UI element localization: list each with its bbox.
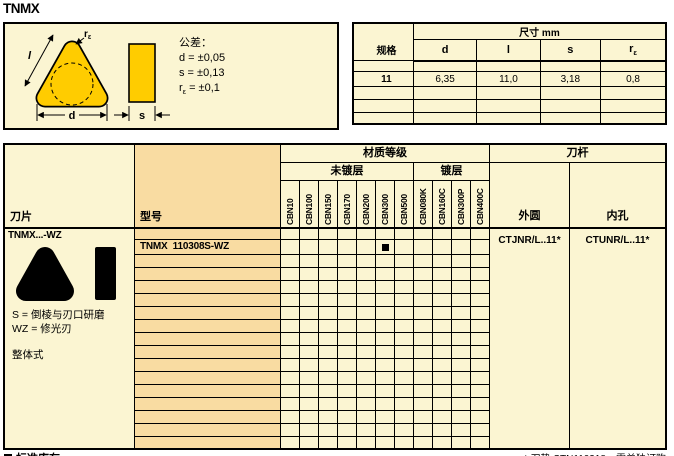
model-row [135, 307, 280, 320]
grade-grid-row [281, 385, 490, 398]
grade-grid-cell [414, 307, 433, 320]
grade-grid-cell [433, 281, 452, 294]
stock-marker [382, 244, 389, 251]
grade-grid-cell [471, 320, 490, 333]
grade-column-cbn500: CBN500 [395, 181, 414, 227]
grade-grid-row [281, 346, 490, 359]
grade-grid-cell [319, 437, 338, 448]
grade-grid-cell [300, 320, 319, 333]
insert-silhouettes [13, 245, 131, 303]
grade-grid-cell [376, 268, 395, 281]
grade-grid-cell [319, 372, 338, 385]
empty-cell [477, 87, 540, 100]
grade-grid-cell [452, 411, 471, 424]
grade-grid-cell [319, 398, 338, 411]
tolerance-r-rest: = ±0,1 [186, 82, 220, 94]
grade-grid-cell [433, 346, 452, 359]
note-edge-prep: S = 倒棱与刃口研磨 [12, 307, 104, 322]
grade-grid-cell [433, 372, 452, 385]
grade-grid-cell [452, 268, 471, 281]
model-row [135, 437, 280, 448]
grade-grid-cell [281, 359, 300, 372]
empty-cell [413, 87, 476, 100]
grade-column-cbn400c: CBN400C [471, 181, 490, 227]
grade-grid-cell [452, 307, 471, 320]
grade-grid-cell [471, 281, 490, 294]
grade-grid-cell [300, 346, 319, 359]
grade-grid-row [281, 229, 490, 240]
grade-grid-cell [357, 255, 376, 268]
grade-grid-cell [338, 346, 357, 359]
grade-grid-cell [338, 411, 357, 424]
grade-grid-cell [357, 268, 376, 281]
grade-columns: CBN10CBN100CBN150CBN170CBN200CBN300CBN50… [281, 181, 490, 227]
grade-column-label: CBN500 [399, 194, 409, 225]
empty-cell [601, 61, 666, 72]
grade-grid-cell [414, 320, 433, 333]
grade-column-label: CBN400C [475, 188, 485, 225]
empty-cell [601, 87, 666, 100]
grade-grid-cell [452, 240, 471, 255]
grade-grid-row [281, 411, 490, 424]
tolerance-block: 公差： d = ±0,05 s = ±0,13 rε = ±0,1 [179, 36, 225, 99]
grade-grid-cell [414, 268, 433, 281]
grade-grid-cell [471, 294, 490, 307]
grade-grid-cell [338, 294, 357, 307]
grade-grid-cell [414, 240, 433, 255]
grade-grid-cell [433, 294, 452, 307]
grade-grid-cell [471, 255, 490, 268]
grade-grid-cell [452, 281, 471, 294]
tolerance-r: rε = ±0,1 [179, 81, 225, 99]
grade-grid-cell [414, 255, 433, 268]
grade-grid-cell [281, 320, 300, 333]
grade-grid-cell [376, 398, 395, 411]
grade-grid-cell [338, 255, 357, 268]
grade-grid-cell [471, 333, 490, 346]
model-row [135, 398, 280, 411]
label-d: d [69, 110, 76, 122]
holder-external-header-cell: 外圆 [490, 163, 570, 227]
grade-grid-cell [338, 229, 357, 240]
grade-grid-cell [433, 268, 452, 281]
holder-external-value: CTJNR/L..11* [490, 229, 569, 246]
grade-grid-cell [414, 385, 433, 398]
grade-grid-cell [471, 229, 490, 240]
empty-cell [540, 113, 600, 124]
grade-grid-row [281, 307, 490, 320]
grade-column-label: CBN10 [285, 199, 295, 225]
grade-grid-cell [357, 385, 376, 398]
empty-cell [540, 61, 600, 72]
insert-dimension-drawing: l rε d s [17, 28, 177, 128]
value-s: 3,18 [540, 72, 600, 87]
model-row [135, 255, 280, 268]
grade-grid-row [281, 268, 490, 281]
grade-grid-cell [357, 437, 376, 448]
grade-grid-cell [395, 385, 414, 398]
grade-grid-cell [300, 240, 319, 255]
col-header-r: rε [601, 40, 666, 61]
empty-cell [413, 113, 476, 124]
grade-grid-cell [376, 411, 395, 424]
empty-cell [540, 87, 600, 100]
grade-grid-cell [357, 372, 376, 385]
grade-column-label: CBN300 [380, 194, 390, 225]
empty-cell [413, 61, 476, 72]
grade-grid-row [281, 240, 490, 255]
grade-grid-cell [281, 411, 300, 424]
grade-grid-cell [433, 255, 452, 268]
grade-grid-cell [300, 437, 319, 448]
grade-grid-cell [414, 398, 433, 411]
catalog-page: TNMX l rε d s [0, 0, 674, 456]
grade-grid-cell [376, 372, 395, 385]
grade-grid-cell [338, 437, 357, 448]
grade-grid-cell [452, 294, 471, 307]
grade-grid-cell [471, 424, 490, 437]
grade-column-cbn100: CBN100 [300, 181, 319, 227]
grade-grid-cell [281, 372, 300, 385]
grade-grid-cell [376, 437, 395, 448]
grade-grid-cell [433, 385, 452, 398]
grade-grid-cell [338, 385, 357, 398]
model-row [135, 359, 280, 372]
grade-grid-cell [319, 240, 338, 255]
grade-grid-cell [414, 229, 433, 240]
grade-grid-cell [357, 333, 376, 346]
grade-grid-cell [300, 424, 319, 437]
grade-grid-cell [471, 268, 490, 281]
grade-grid-cell [357, 240, 376, 255]
grade-grid-cell [357, 229, 376, 240]
grade-group-header: 材质等级 [281, 145, 490, 163]
grade-grid-cell [357, 346, 376, 359]
grade-grid-cell [357, 359, 376, 372]
grade-grid-cell [452, 359, 471, 372]
grade-grid-cell [300, 229, 319, 240]
grade-grid-cell [395, 281, 414, 294]
grade-grid-cell [395, 229, 414, 240]
grade-grid-cell [452, 372, 471, 385]
grade-grid-cell [281, 385, 300, 398]
col-header-s: s [540, 40, 600, 61]
grade-grid-cell [452, 229, 471, 240]
grade-grid-cell [281, 398, 300, 411]
grade-grid-cell [319, 268, 338, 281]
grade-grid-cell [414, 424, 433, 437]
grade-grid-cell [338, 307, 357, 320]
grade-grid-cell [471, 437, 490, 448]
empty-cell [601, 113, 666, 124]
grade-grid-cell [357, 424, 376, 437]
insert-silhouette-side [95, 247, 116, 300]
grade-grid-cell [319, 333, 338, 346]
shim-footnote: * 刀垫 STN110318，需单独订购 [524, 450, 666, 456]
grade-grid-cell [376, 333, 395, 346]
empty-cell [540, 100, 600, 113]
grade-column-cbn10: CBN10 [281, 181, 300, 227]
grade-grid-cell [395, 359, 414, 372]
grade-grid-cell [300, 307, 319, 320]
grade-grid-cell [395, 307, 414, 320]
grade-grid-cell [414, 359, 433, 372]
grade-grid-row [281, 398, 490, 411]
grade-grid-cell [338, 398, 357, 411]
grade-grid-cell [281, 255, 300, 268]
grade-grid-cell [433, 307, 452, 320]
grade-column-label: CBN200 [361, 194, 371, 225]
grade-grid-cell [357, 398, 376, 411]
grade-grid-cell [338, 281, 357, 294]
grade-grid-cell [319, 385, 338, 398]
grade-grid-cell [395, 255, 414, 268]
grade-grid-cell [319, 320, 338, 333]
page-title: TNMX [3, 1, 39, 16]
empty-cell [601, 100, 666, 113]
empty-cell [477, 113, 540, 124]
grade-column-label: CBN080K [418, 188, 428, 225]
model-row [135, 372, 280, 385]
uncoated-group-header: 未镀层 [281, 163, 414, 181]
grade-grid-cell [414, 411, 433, 424]
grade-grid-cell [471, 346, 490, 359]
grade-grid-cell [433, 229, 452, 240]
empty-cell [353, 100, 413, 113]
grade-grid-cell [452, 255, 471, 268]
grade-grid-cell [376, 229, 395, 240]
tolerance-s: s = ±0,13 [179, 66, 225, 81]
grade-grid-cell [433, 240, 452, 255]
grade-grid-cell [338, 320, 357, 333]
grade-grid-cell [433, 359, 452, 372]
coated-group-header: 镀层 [414, 163, 490, 181]
grade-grid-cell [281, 240, 300, 255]
grade-grid-row [281, 437, 490, 448]
grade-grid-cell [395, 268, 414, 281]
grade-column-cbn200: CBN200 [357, 181, 376, 227]
grade-grid-row [281, 294, 490, 307]
grade-grid-cell [376, 385, 395, 398]
holder-internal-header: 内孔 [570, 207, 665, 223]
model-row [135, 424, 280, 437]
grade-grid-cell [357, 281, 376, 294]
grade-grid-cell [300, 294, 319, 307]
model-row [135, 229, 280, 240]
grade-grid-cell [376, 255, 395, 268]
grade-column-cbn160c: CBN160C [433, 181, 452, 227]
grade-grid-cell [300, 398, 319, 411]
grade-selection-table: 刀片 型号 材质等级 未镀层 镀层 CBN10CBN100CBN150CBN17… [3, 143, 667, 450]
grade-grid-cell [433, 437, 452, 448]
grade-grid-cell [300, 255, 319, 268]
holder-internal-header-cell: 内孔 [570, 163, 665, 227]
grade-grid-cell [281, 268, 300, 281]
model-row [135, 411, 280, 424]
insert-header-cell: 刀片 [5, 145, 135, 227]
grade-grid-cell [471, 398, 490, 411]
grade-grid-row [281, 320, 490, 333]
label-l: l [28, 50, 32, 62]
grade-grid-cell [395, 437, 414, 448]
grade-grid-cell [300, 281, 319, 294]
grade-grid-row [281, 255, 490, 268]
grade-grid-cell [395, 372, 414, 385]
spec-header: 规格 [353, 23, 413, 61]
grade-grid-cell [395, 294, 414, 307]
size-group-header: 尺寸 mm [413, 23, 666, 40]
grade-column-cbn170: CBN170 [338, 181, 357, 227]
grade-grid-cell [414, 372, 433, 385]
empty-cell [477, 100, 540, 113]
grade-grid-cell [452, 320, 471, 333]
grade-grid-cell [471, 307, 490, 320]
grade-grid-cell [281, 229, 300, 240]
grade-grid-cell [319, 359, 338, 372]
grade-grid-cell [338, 359, 357, 372]
grade-grid-cell [414, 294, 433, 307]
grade-grid-cell [414, 346, 433, 359]
model-row [135, 268, 280, 281]
grade-grid-cell [376, 424, 395, 437]
grade-grid-cell [319, 229, 338, 240]
grade-grid-cell [376, 294, 395, 307]
grade-grid-cell [471, 359, 490, 372]
grade-column-cbn150: CBN150 [319, 181, 338, 227]
grade-grid-cell [281, 294, 300, 307]
stock-legend: 标准库存 [4, 450, 60, 456]
grade-grid-cell [433, 320, 452, 333]
grade-column-label: CBN170 [342, 194, 352, 225]
grade-grid-cell [376, 320, 395, 333]
holder-internal-cell: CTUNR/L..11* [570, 229, 665, 448]
model-header-label: 型号 [140, 208, 162, 224]
grade-grid-cell [281, 333, 300, 346]
model-row [135, 294, 280, 307]
insert-header-label: 刀片 [10, 208, 32, 224]
grade-column-cbn080k: CBN080K [414, 181, 433, 227]
grade-grid-cell [281, 424, 300, 437]
grade-grid-cell [300, 385, 319, 398]
grade-grid-cell [433, 333, 452, 346]
grade-grid-cell [471, 411, 490, 424]
grade-grid-cell [452, 333, 471, 346]
grade-column-label: CBN300P [456, 189, 466, 225]
grade-grid-cell [433, 411, 452, 424]
grade-grid-cell [319, 346, 338, 359]
grade-grid-cell [357, 320, 376, 333]
grade-grid-cell [433, 398, 452, 411]
grade-grid-cell [471, 240, 490, 255]
grade-grid-cell [452, 424, 471, 437]
grade-grid [281, 229, 490, 448]
grade-grid-cell [357, 294, 376, 307]
grade-grid-cell [452, 437, 471, 448]
grade-grid-cell [452, 385, 471, 398]
grade-grid-cell [319, 255, 338, 268]
grade-grid-cell [471, 372, 490, 385]
value-l: 11,0 [477, 72, 540, 87]
grade-grid-row [281, 372, 490, 385]
grade-grid-cell [281, 307, 300, 320]
note-wiper: WZ = 修光刃 [12, 321, 72, 336]
grade-grid-cell [376, 307, 395, 320]
grade-grid-cell [376, 281, 395, 294]
value-r: 0,8 [601, 72, 666, 87]
grade-grid-cell [281, 437, 300, 448]
grade-grid-cell [471, 385, 490, 398]
col-header-l: l [477, 40, 540, 61]
grade-grid-cell [281, 346, 300, 359]
grade-grid-cell [376, 346, 395, 359]
model-row: TNMX 110308S-WZ [135, 240, 280, 255]
grade-grid-cell [300, 333, 319, 346]
grade-grid-cell [338, 333, 357, 346]
grade-grid-cell [414, 281, 433, 294]
grade-column-label: CBN160C [437, 188, 447, 225]
grade-grid-cell [452, 346, 471, 359]
model-row [135, 346, 280, 359]
model-row [135, 385, 280, 398]
holder-internal-value: CTUNR/L..11* [570, 229, 665, 246]
label-corner-radius: rε [84, 29, 92, 41]
dimension-table: 规格 尺寸 mm d l s rε 11 6,35 11,0 3,18 0,8 [352, 22, 667, 125]
grade-grid-cell [395, 333, 414, 346]
corner-radius-arrow [76, 38, 84, 44]
empty-cell [353, 61, 413, 72]
grade-grid-cell [414, 437, 433, 448]
grade-grid-row [281, 359, 490, 372]
grade-grid-cell [357, 411, 376, 424]
holder-external-header: 外圆 [490, 207, 569, 223]
grade-grid-cell [376, 359, 395, 372]
model-row [135, 333, 280, 346]
tolerance-title: 公差： [179, 36, 225, 51]
grade-grid-cell [319, 424, 338, 437]
grade-column-cbn300: CBN300 [376, 181, 395, 227]
grade-grid-cell [338, 372, 357, 385]
spec-value: 11 [353, 72, 413, 87]
grade-column-label: CBN100 [304, 194, 314, 225]
grade-grid-cell [338, 424, 357, 437]
grade-grid-cell [395, 398, 414, 411]
model-header-cell: 型号 [135, 145, 281, 227]
model-row [135, 320, 280, 333]
grade-grid-cell [300, 411, 319, 424]
grade-grid-cell [376, 240, 395, 255]
grade-grid-cell [319, 411, 338, 424]
insert-diagram-box: l rε d s 公差： d = ±0,05 s = ±0,13 rε = ±0… [3, 22, 339, 130]
grade-grid-cell [395, 320, 414, 333]
grade-column-cbn300p: CBN300P [452, 181, 471, 227]
model-row [135, 281, 280, 294]
grade-grid-cell [319, 307, 338, 320]
holder-external-cell: CTJNR/L..11* [490, 229, 570, 448]
grade-grid-cell [433, 424, 452, 437]
col-header-d: d [413, 40, 476, 61]
tolerance-d: d = ±0,05 [179, 51, 225, 66]
grade-grid-row [281, 424, 490, 437]
empty-cell [353, 113, 413, 124]
insert-side-view [129, 44, 155, 102]
grade-grid-cell [281, 281, 300, 294]
empty-cell [413, 100, 476, 113]
grade-grid-cell [319, 281, 338, 294]
insert-info-cell: TNMX...-WZ S = 倒棱与刃口研磨 WZ = 修光刃 整体式 [5, 229, 135, 448]
grade-grid-row [281, 281, 490, 294]
label-s: s [139, 110, 145, 122]
dimension-table-wrap: 规格 尺寸 mm d l s rε 11 6,35 11,0 3,18 0,8 [352, 22, 667, 125]
